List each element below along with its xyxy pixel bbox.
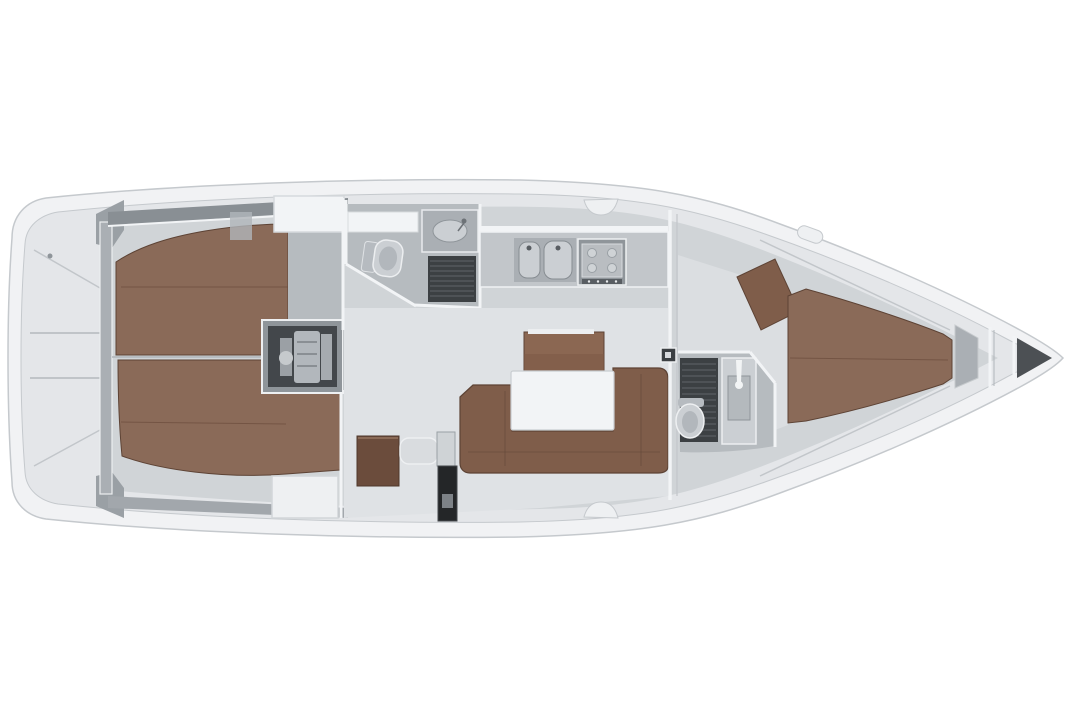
shower-head-icon (735, 381, 743, 389)
nav-chart-table (357, 436, 399, 486)
aft-head-cabinet (348, 212, 418, 232)
forward-toilet-seat (682, 411, 698, 433)
engine-pulley (279, 351, 293, 365)
aft-cabin-starboard-bench (272, 476, 338, 518)
aft-head-faucet-icon (462, 219, 467, 224)
yacht-floor-plan (0, 0, 1080, 720)
mast-post (437, 432, 455, 466)
galley-knob (597, 280, 599, 282)
aft-head-shower-grate (428, 256, 476, 302)
engine-block (294, 331, 320, 383)
aft-head-toilet (361, 237, 405, 278)
aft-head-sink (433, 220, 467, 242)
engine-manifold (321, 334, 332, 380)
galley-burner (608, 249, 617, 258)
galley (480, 226, 668, 287)
galley-burner (588, 264, 597, 273)
galley-knob (606, 280, 608, 282)
galley-faucet-icon (527, 246, 532, 251)
bulkhead-latch-pin (665, 352, 671, 358)
salon-sideboard-top (528, 329, 594, 334)
aft-cabin-port-cabinet (274, 196, 344, 232)
nav-seat (400, 438, 438, 464)
stern-bulkhead (100, 222, 112, 494)
engine-compartment (262, 320, 343, 393)
galley-stove-top (582, 244, 622, 277)
galley-faucet-icon (556, 246, 561, 251)
salon-sideboard-shade (524, 354, 604, 372)
galley-burner (588, 249, 597, 258)
galley-knob (588, 280, 590, 282)
forward-head (676, 352, 775, 452)
aft-cabin-port-floor (288, 230, 343, 324)
mast-locker (438, 466, 457, 521)
salon-table (511, 371, 614, 430)
shower-head-icon (736, 360, 742, 382)
galley-knob (615, 280, 617, 282)
galley-burner (608, 264, 617, 273)
mast-locker-detail (442, 494, 453, 508)
deck-step (230, 212, 252, 240)
deck-fitting (48, 254, 53, 259)
